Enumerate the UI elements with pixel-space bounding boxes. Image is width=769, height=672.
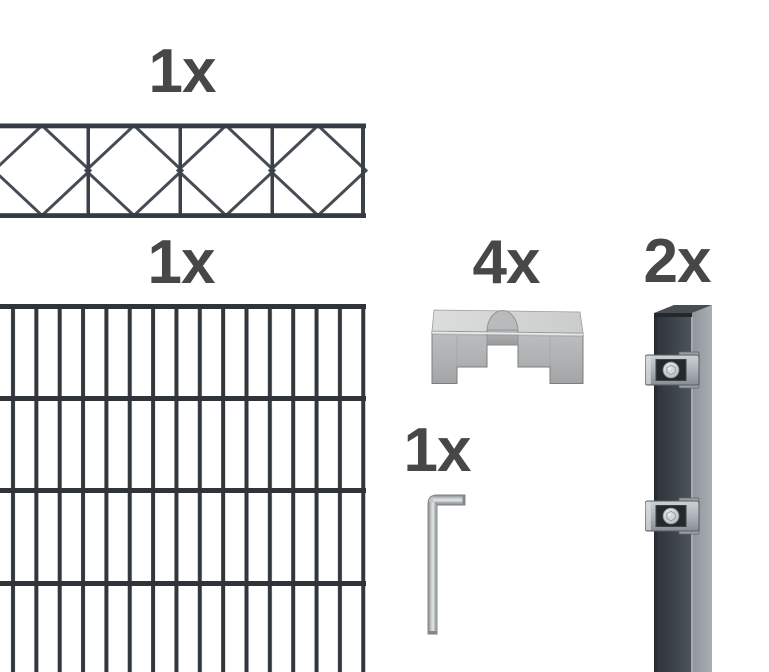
post-clamp-lower — [645, 498, 699, 534]
allen-key-quantity-label: 1x — [377, 420, 497, 482]
decorative-panel-quantity-label: 1x — [122, 41, 242, 103]
mesh-panel-quantity-label: 1x — [121, 232, 241, 294]
cover-clamp-quantity-label: 4x — [446, 232, 566, 294]
cover-clamp-image — [428, 303, 588, 389]
mesh-fence-panel-image — [0, 304, 366, 672]
post-clamp-upper — [645, 352, 699, 388]
decorative-fence-panel-image — [0, 123, 369, 219]
fence-post-image — [645, 300, 715, 672]
fence-kit-contents-image: 1x 1x 4x 2x 1x — [0, 0, 769, 672]
post-quantity-label: 2x — [617, 231, 737, 293]
allen-key-image — [425, 490, 470, 640]
